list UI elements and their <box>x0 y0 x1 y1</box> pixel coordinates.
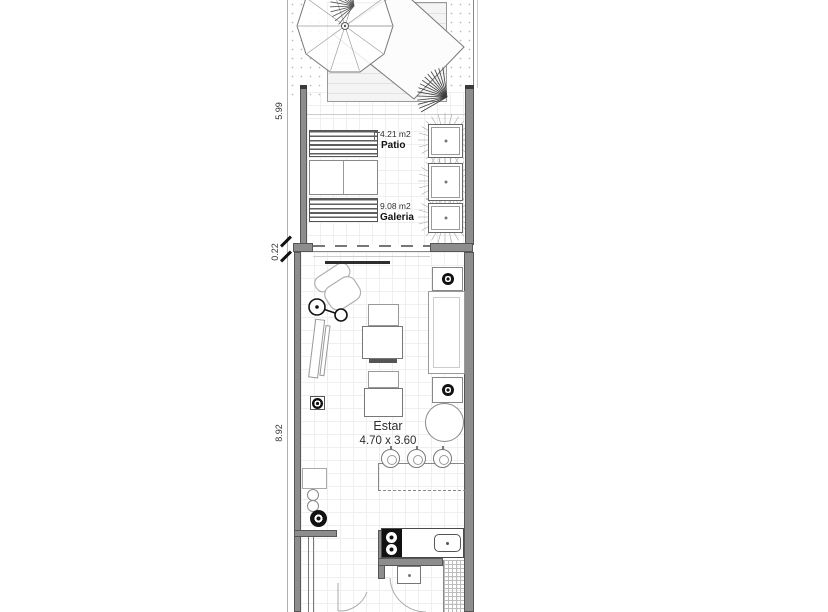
planter-3-dot <box>444 217 447 220</box>
stool-1 <box>381 449 400 468</box>
sliding-door <box>313 245 430 247</box>
washbasin-drain <box>408 574 411 577</box>
galeria-name-label: Galeria <box>380 212 414 223</box>
wall-interior-right <box>464 252 474 612</box>
dining-table-2 <box>364 388 403 417</box>
plan-linework <box>0 0 828 612</box>
wall-patio-right <box>465 88 474 245</box>
kitchen-sink-drain <box>446 542 449 545</box>
galeria-area-label: 9.08 m2 <box>380 202 411 211</box>
wall-junction-right <box>430 243 473 252</box>
planter-2-dot <box>444 181 447 184</box>
sliding-door-track <box>313 251 430 252</box>
planter-3 <box>428 203 463 233</box>
wall-bath-divider <box>378 558 443 566</box>
patio-area-label: 4.21 m2 <box>380 130 411 139</box>
deck-bench-lower <box>309 198 378 222</box>
stove-burner-1 <box>386 532 397 543</box>
estar-size-label: 4.70 x 3.60 <box>352 435 424 448</box>
wall-cap-left <box>300 85 307 89</box>
left-cabinet <box>302 468 327 489</box>
planter-2 <box>428 163 463 201</box>
dining-table-1-shadow <box>369 359 397 363</box>
closet <box>308 537 314 612</box>
round-table <box>425 403 464 442</box>
curtain-ledge <box>325 261 390 264</box>
side-table-bottom-lamp <box>442 384 454 396</box>
floor-plan: 4.21 m2 Patio 9.08 m2 Galeria Estar 4.70… <box>0 0 828 612</box>
wall-shelf <box>309 319 331 378</box>
deck-bench-upper <box>309 130 378 157</box>
wall-interior-left <box>294 252 301 612</box>
planter-1-dot <box>444 140 447 143</box>
dimension-wall-gap: 0.22 <box>270 236 280 268</box>
wall-patio-left <box>300 88 307 245</box>
stool-2 <box>407 449 426 468</box>
dimension-line <box>287 0 288 612</box>
wall-junction-left <box>293 243 313 252</box>
wall-cap-right <box>465 85 474 89</box>
dining-chair-1 <box>368 304 399 326</box>
sofa-cushion <box>433 297 460 368</box>
sliding-door-sill <box>313 256 430 257</box>
dimension-garden: 5.99 <box>274 95 284 127</box>
patio-table-divider <box>343 161 344 194</box>
shower-tiles <box>443 560 464 612</box>
stove-burner-2 <box>386 544 397 555</box>
stool-3 <box>433 449 452 468</box>
dimension-interior: 8.92 <box>274 417 284 449</box>
side-table-top-lamp <box>442 273 454 285</box>
cooktop-ring <box>310 510 327 527</box>
planter-1 <box>428 124 463 158</box>
wall-kitchen-stub <box>294 530 337 537</box>
dining-table-1 <box>362 326 403 359</box>
wall-outlet-symbol <box>312 398 323 409</box>
closet-door-arc <box>338 583 367 611</box>
estar-name-label: Estar <box>358 420 418 434</box>
patio-name-label: Patio <box>381 140 405 151</box>
dining-chair-2 <box>368 371 399 388</box>
